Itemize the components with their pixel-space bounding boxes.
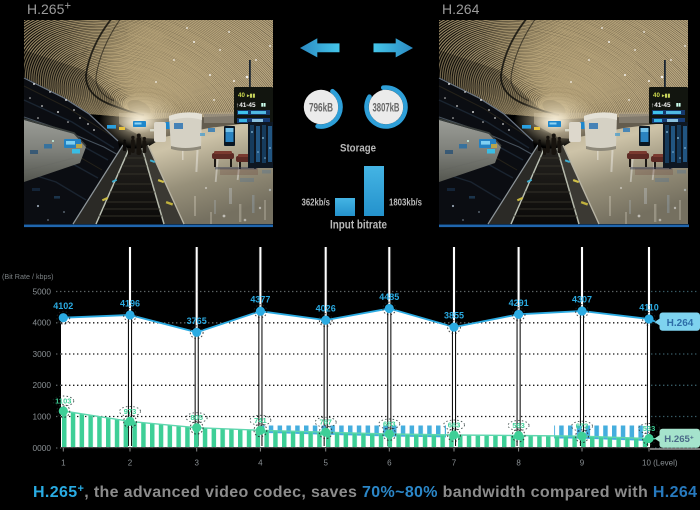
svg-text:973: 973 [124,407,137,416]
svg-text:767: 767 [319,418,332,427]
svg-text:5: 5 [323,459,328,468]
svg-text:362kb/s: 362kb/s [302,198,331,209]
svg-text:796kB: 796kB [309,101,333,115]
svg-text:(Bit Rate / kbps): (Bit Rate / kbps) [2,272,54,281]
svg-text:741: 741 [254,416,267,425]
svg-text:10 (Level): 10 (Level) [642,459,678,468]
svg-text:Input bitrate: Input bitrate [330,220,387,232]
svg-text:4026: 4026 [316,304,336,314]
svg-text:673: 673 [576,422,589,431]
svg-text:3807kB: 3807kB [373,101,400,115]
svg-text:4196: 4196 [120,299,140,309]
svg-text:9: 9 [580,459,585,468]
svg-text:3000: 3000 [33,349,52,359]
svg-text:563: 563 [512,421,525,430]
svg-text:8: 8 [516,459,521,468]
svg-text:4102: 4102 [53,301,73,311]
svg-text:3765: 3765 [187,316,207,326]
svg-text:1103: 1103 [55,397,71,406]
svg-text:805: 805 [190,413,203,422]
svg-text:4110: 4110 [639,303,659,313]
svg-text:2: 2 [128,459,133,468]
svg-text:3: 3 [194,459,199,468]
svg-text:4291: 4291 [509,298,529,308]
svg-text:6: 6 [387,459,392,468]
svg-text:2000: 2000 [33,380,52,390]
svg-text:7: 7 [452,459,457,468]
svg-text:533: 533 [643,424,656,433]
svg-text:4000: 4000 [33,318,52,328]
svg-text:1803kb/s: 1803kb/s [389,198,422,209]
svg-text:H.264: H.264 [442,1,480,17]
svg-text:4377: 4377 [250,295,270,305]
svg-text:H.265+: H.265+ [664,434,694,445]
svg-text:4307: 4307 [572,295,592,305]
svg-text:H.265+, the advanced video cod: H.265+, the advanced video codec, saves … [33,483,697,501]
svg-text:683: 683 [383,420,396,429]
svg-text:1: 1 [61,459,66,468]
svg-text:3855: 3855 [444,311,464,321]
svg-text:4: 4 [258,459,263,468]
svg-text:663: 663 [448,421,461,430]
svg-text:0000: 0000 [33,443,52,453]
svg-text:Storage: Storage [340,143,376,155]
svg-text:1000: 1000 [33,411,52,421]
svg-text:4485: 4485 [379,292,399,302]
svg-text:H.264: H.264 [667,318,694,329]
svg-text:5000: 5000 [33,286,52,296]
